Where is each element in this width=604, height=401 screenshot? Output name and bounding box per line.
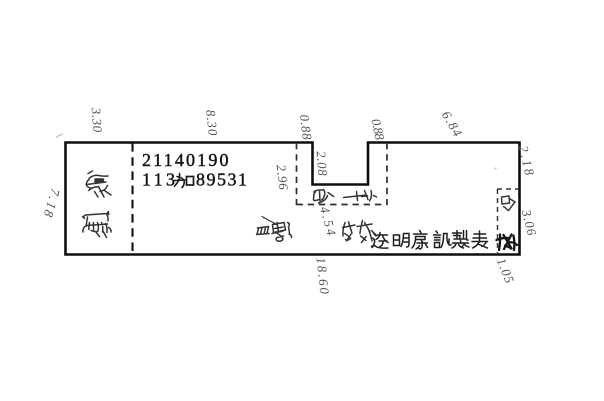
svg-text:3.06: 3.06 bbox=[519, 207, 540, 238]
svg-text:0.88: 0.88 bbox=[297, 114, 315, 142]
svg-text:1.05: 1.05 bbox=[494, 256, 518, 286]
svg-text:0.88: 0.88 bbox=[368, 117, 387, 141]
svg-text:113: 113 bbox=[142, 170, 175, 190]
svg-text:4.54: 4.54 bbox=[317, 205, 340, 239]
svg-text:89531: 89531 bbox=[196, 170, 247, 190]
svg-text:2.08: 2.08 bbox=[314, 151, 331, 177]
svg-text:7.18: 7.18 bbox=[40, 187, 63, 221]
svg-text:18.60: 18.60 bbox=[313, 256, 332, 296]
svg-text:21140190: 21140190 bbox=[142, 150, 229, 170]
svg-text:8.30: 8.30 bbox=[203, 109, 221, 137]
svg-text:3.30: 3.30 bbox=[89, 106, 106, 133]
svg-text:2.96: 2.96 bbox=[274, 164, 292, 191]
svg-text:6.84: 6.84 bbox=[439, 108, 466, 140]
